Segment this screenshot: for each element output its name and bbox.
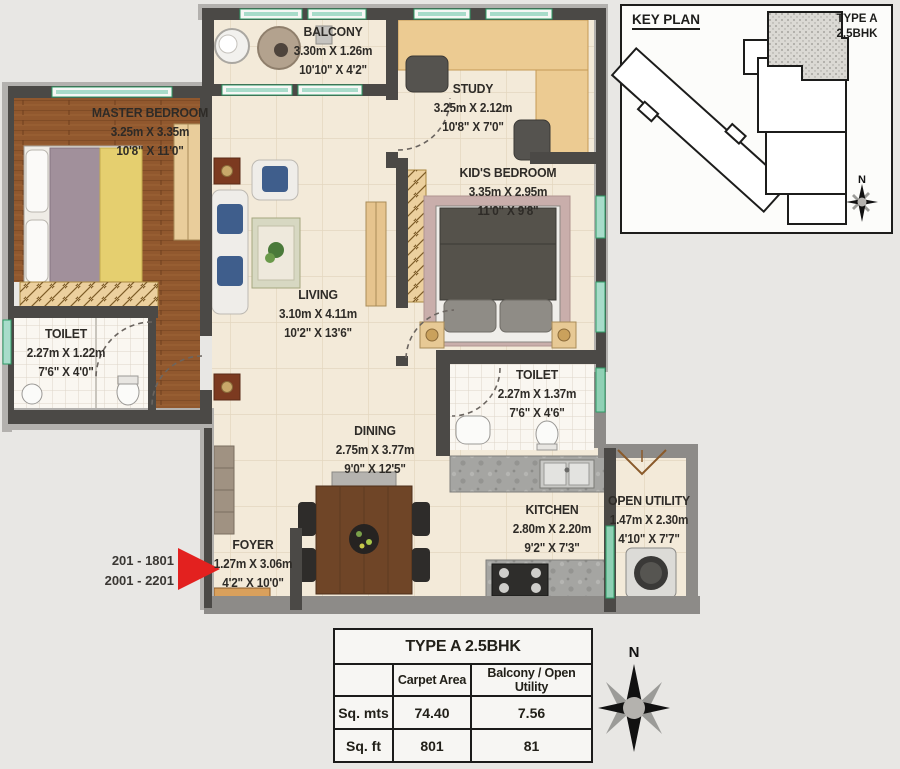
room-label-dining: DINING 2.75m X 3.77m 9'0" X 12'5"	[336, 421, 415, 480]
room-dim-imperial: 4'10" X 7'7"	[608, 530, 690, 550]
room-label-open-utility: OPEN UTILITY 1.47m X 2.30m 4'10" X 7'7"	[608, 491, 690, 550]
area-table-title-row: TYPE A 2.5BHK	[334, 629, 592, 664]
key-plan-building	[607, 12, 848, 224]
balcony-area-sqft: 81	[471, 729, 592, 762]
room-name: FOYER	[214, 535, 293, 555]
room-dim-imperial: 9'2" X 7'3"	[513, 539, 592, 559]
room-dim-imperial: 7'6" X 4'0"	[27, 363, 106, 383]
living-sofa	[212, 190, 248, 314]
room-dim-imperial: 10'10" X 4'2"	[294, 61, 373, 81]
room-dim-metric: 3.25m X 2.12m	[434, 99, 513, 119]
key-plan-title: KEY PLAN	[632, 12, 700, 30]
area-table: TYPE A 2.5BHK Carpet Area Balcony / Open…	[333, 628, 593, 763]
living-armchair	[252, 160, 298, 200]
row-label: Sq. ft	[334, 729, 393, 762]
room-dim-imperial: 10'2" X 13'6"	[279, 324, 357, 344]
room-dim-metric: 3.35m X 2.95m	[460, 183, 557, 203]
room-dim-imperial: 9'0" X 12'5"	[336, 460, 415, 480]
compass-icon	[598, 664, 670, 752]
room-dim-metric: 2.75m X 3.77m	[336, 441, 415, 461]
room-label-foyer: FOYER 1.27m X 3.06m 4'2" X 10'0"	[214, 535, 293, 594]
room-dim-imperial: 7'6" X 4'6"	[498, 404, 577, 424]
key-plan-north-label: N	[858, 174, 866, 186]
room-label-study: STUDY 3.25m X 2.12m 10'8" X 7'0"	[434, 79, 513, 138]
balcony-area-sqmts: 7.56	[471, 696, 592, 729]
dining-table	[298, 472, 430, 594]
key-plan-compass-icon	[846, 184, 878, 222]
room-dim-metric: 2.27m X 1.22m	[27, 344, 106, 364]
area-table-header-balcony: Balcony / Open Utility	[471, 664, 592, 696]
room-label-master-bedroom: MASTER BEDROOM 3.25m X 3.35m 10'8" X 11'…	[92, 103, 208, 162]
room-dim-metric: 2.80m X 2.20m	[513, 520, 592, 540]
room-dim-metric: 3.25m X 3.35m	[92, 123, 208, 143]
area-table-row-sqmts: Sq. mts 74.40 7.56	[334, 696, 592, 729]
floor-range-line1: 201 - 1801	[96, 551, 174, 571]
room-dim-imperial: 4'2" X 10'0"	[214, 574, 293, 594]
room-name: TOILET	[27, 324, 106, 344]
kids-bed	[420, 206, 576, 348]
room-dim-imperial: 11'0" X 9'8"	[460, 202, 557, 222]
room-label-living: LIVING 3.10m X 4.11m 10'2" X 13'6"	[279, 285, 357, 344]
key-plan-type-line2: 2.5BHK	[836, 27, 877, 42]
wardrobe-hatch-master	[20, 282, 158, 310]
floorplan-page: BALCONY 3.30m X 1.26m 10'10" X 4'2" MAST…	[0, 0, 900, 769]
room-dim-metric: 1.47m X 2.30m	[608, 511, 690, 531]
room-name: OPEN UTILITY	[608, 491, 690, 511]
floor-range-line2: 2001 - 2201	[96, 571, 174, 591]
room-name: LIVING	[279, 285, 357, 305]
room-name: MASTER BEDROOM	[92, 103, 208, 123]
room-label-kitchen: KITCHEN 2.80m X 2.20m 9'2" X 7'3"	[513, 500, 592, 559]
room-dim-metric: 2.27m X 1.37m	[498, 385, 577, 405]
room-label-balcony: BALCONY 3.30m X 1.26m 10'10" X 4'2"	[294, 22, 373, 81]
room-name: TOILET	[498, 365, 577, 385]
room-name: BALCONY	[294, 22, 373, 42]
area-table-title: TYPE A 2.5BHK	[334, 629, 592, 664]
room-dim-metric: 3.30m X 1.26m	[294, 42, 373, 62]
room-label-kids-bedroom: KID'S BEDROOM 3.35m X 2.95m 11'0" X 9'8"	[460, 163, 557, 222]
room-dim-imperial: 10'8" X 7'0"	[434, 118, 513, 138]
row-label: Sq. mts	[334, 696, 393, 729]
area-table-header-blank	[334, 664, 393, 696]
washing-machine-icon	[626, 548, 676, 598]
floor-range: 201 - 1801 2001 - 2201	[96, 551, 174, 591]
room-dim-metric: 1.27m X 3.06m	[214, 555, 293, 575]
room-label-toilet-2: TOILET 2.27m X 1.37m 7'6" X 4'6"	[498, 365, 577, 424]
room-dim-metric: 3.10m X 4.11m	[279, 305, 357, 325]
carpet-area-sqmts: 74.40	[393, 696, 471, 729]
room-name: KITCHEN	[513, 500, 592, 520]
area-table-row-sqft: Sq. ft 801 81	[334, 729, 592, 762]
room-label-toilet-1: TOILET 2.27m X 1.22m 7'6" X 4'0"	[27, 324, 106, 383]
master-bed	[24, 146, 142, 286]
carpet-area-sqft: 801	[393, 729, 471, 762]
room-name: KID'S BEDROOM	[460, 163, 557, 183]
living-rug	[252, 218, 300, 288]
key-plan-type-label: TYPE A 2.5BHK	[836, 12, 877, 42]
area-table-header-carpet: Carpet Area	[393, 664, 471, 696]
area-table-header-row: Carpet Area Balcony / Open Utility	[334, 664, 592, 696]
room-name: STUDY	[434, 79, 513, 99]
room-dim-imperial: 10'8" X 11'0"	[92, 142, 208, 162]
room-name: DINING	[336, 421, 415, 441]
key-plan-type-line1: TYPE A	[836, 12, 877, 27]
compass-north-label: N	[629, 644, 640, 661]
balcony-washbasin-icon	[215, 29, 249, 63]
living-cabinet	[366, 202, 386, 306]
